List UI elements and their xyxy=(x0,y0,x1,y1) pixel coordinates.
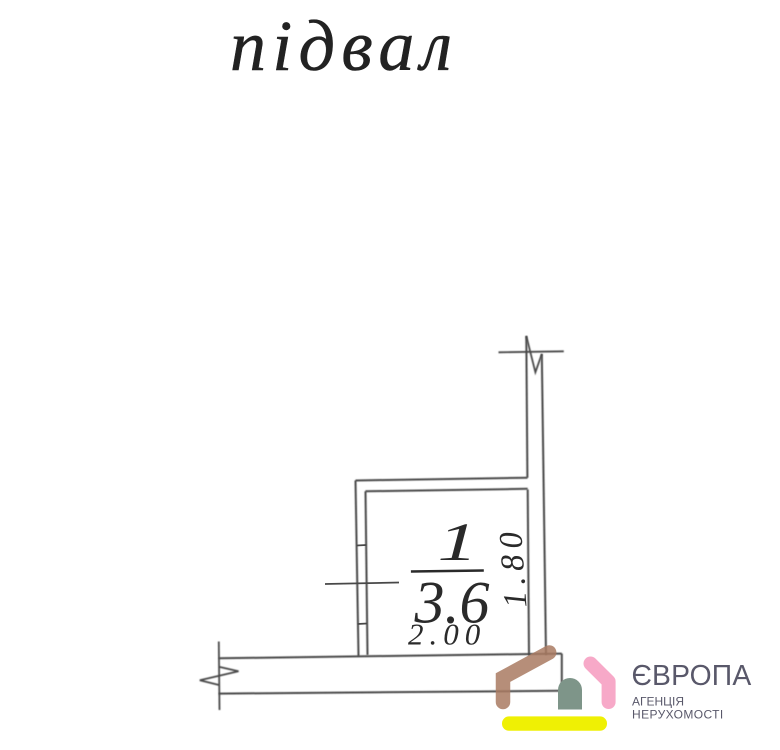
svg-text:ЄВРОПА: ЄВРОПА xyxy=(632,659,752,691)
svg-text:АГЕНЦІЯ: АГЕНЦІЯ xyxy=(632,694,684,708)
svg-text:2.00: 2.00 xyxy=(408,617,486,652)
svg-text:1: 1 xyxy=(438,512,478,572)
svg-text:НЕРУХОМОСТІ: НЕРУХОМОСТІ xyxy=(632,708,724,722)
svg-text:1.80: 1.80 xyxy=(493,525,535,609)
svg-text:підвал: підвал xyxy=(230,6,458,86)
